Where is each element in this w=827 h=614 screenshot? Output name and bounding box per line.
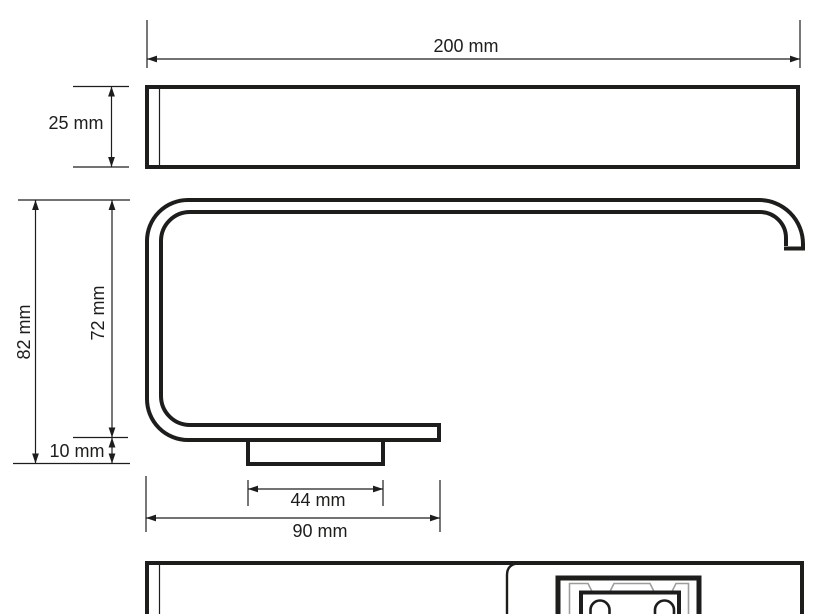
- top-view-outline: [147, 87, 798, 167]
- bracket-spring-clip: [570, 584, 689, 614]
- technical-drawing-page: 200 mm 25 mm 82 mm 72 mm 10 mm: [0, 0, 827, 614]
- dim-label-plate-width: 44 mm: [290, 490, 345, 510]
- side-profile-view: [147, 200, 805, 464]
- bottom-view-outline: [147, 563, 802, 614]
- dimension-width-group: 44 mm 90 mm: [146, 476, 440, 541]
- technical-drawing: 200 mm 25 mm 82 mm 72 mm 10 mm: [0, 0, 827, 614]
- dimension-front-height-25: 25 mm: [48, 87, 129, 168]
- screw-hole-left: [591, 601, 610, 614]
- bracket-housing-divider: [507, 564, 517, 614]
- dim-label-front-height: 25 mm: [48, 113, 103, 133]
- dim-label-inner-depth: 72 mm: [88, 285, 108, 340]
- dim-label-mount-span: 90 mm: [292, 521, 347, 541]
- dim-label-plate-depth: 10 mm: [49, 441, 104, 461]
- dim-label-length: 200 mm: [433, 36, 498, 56]
- screw-hole-right: [655, 601, 674, 614]
- dimension-length-200: 200 mm: [147, 20, 800, 68]
- dimension-depth-group: 82 mm 72 mm 10 mm: [13, 200, 130, 464]
- wall-plate-tab: [248, 440, 383, 464]
- dim-label-total-depth: 82 mm: [14, 304, 34, 359]
- profile-inner-contour: [161, 212, 786, 425]
- top-view: [147, 87, 798, 167]
- mounting-bracket-inner: [581, 593, 679, 614]
- bottom-view: [147, 563, 802, 614]
- profile-outer-contour: [147, 200, 803, 440]
